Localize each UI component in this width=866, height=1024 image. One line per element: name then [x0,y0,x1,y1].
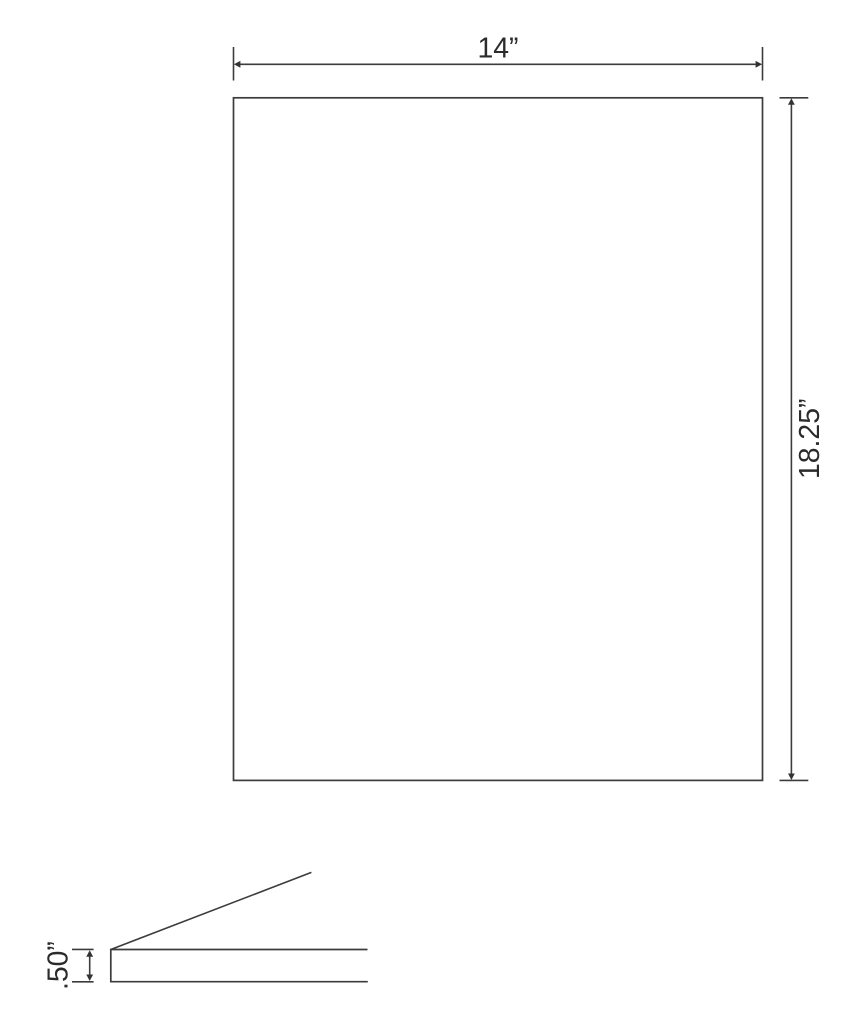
svg-text:14”: 14” [477,33,518,65]
svg-text:.50”: .50” [42,941,74,990]
svg-text:18.25”: 18.25” [794,399,826,480]
